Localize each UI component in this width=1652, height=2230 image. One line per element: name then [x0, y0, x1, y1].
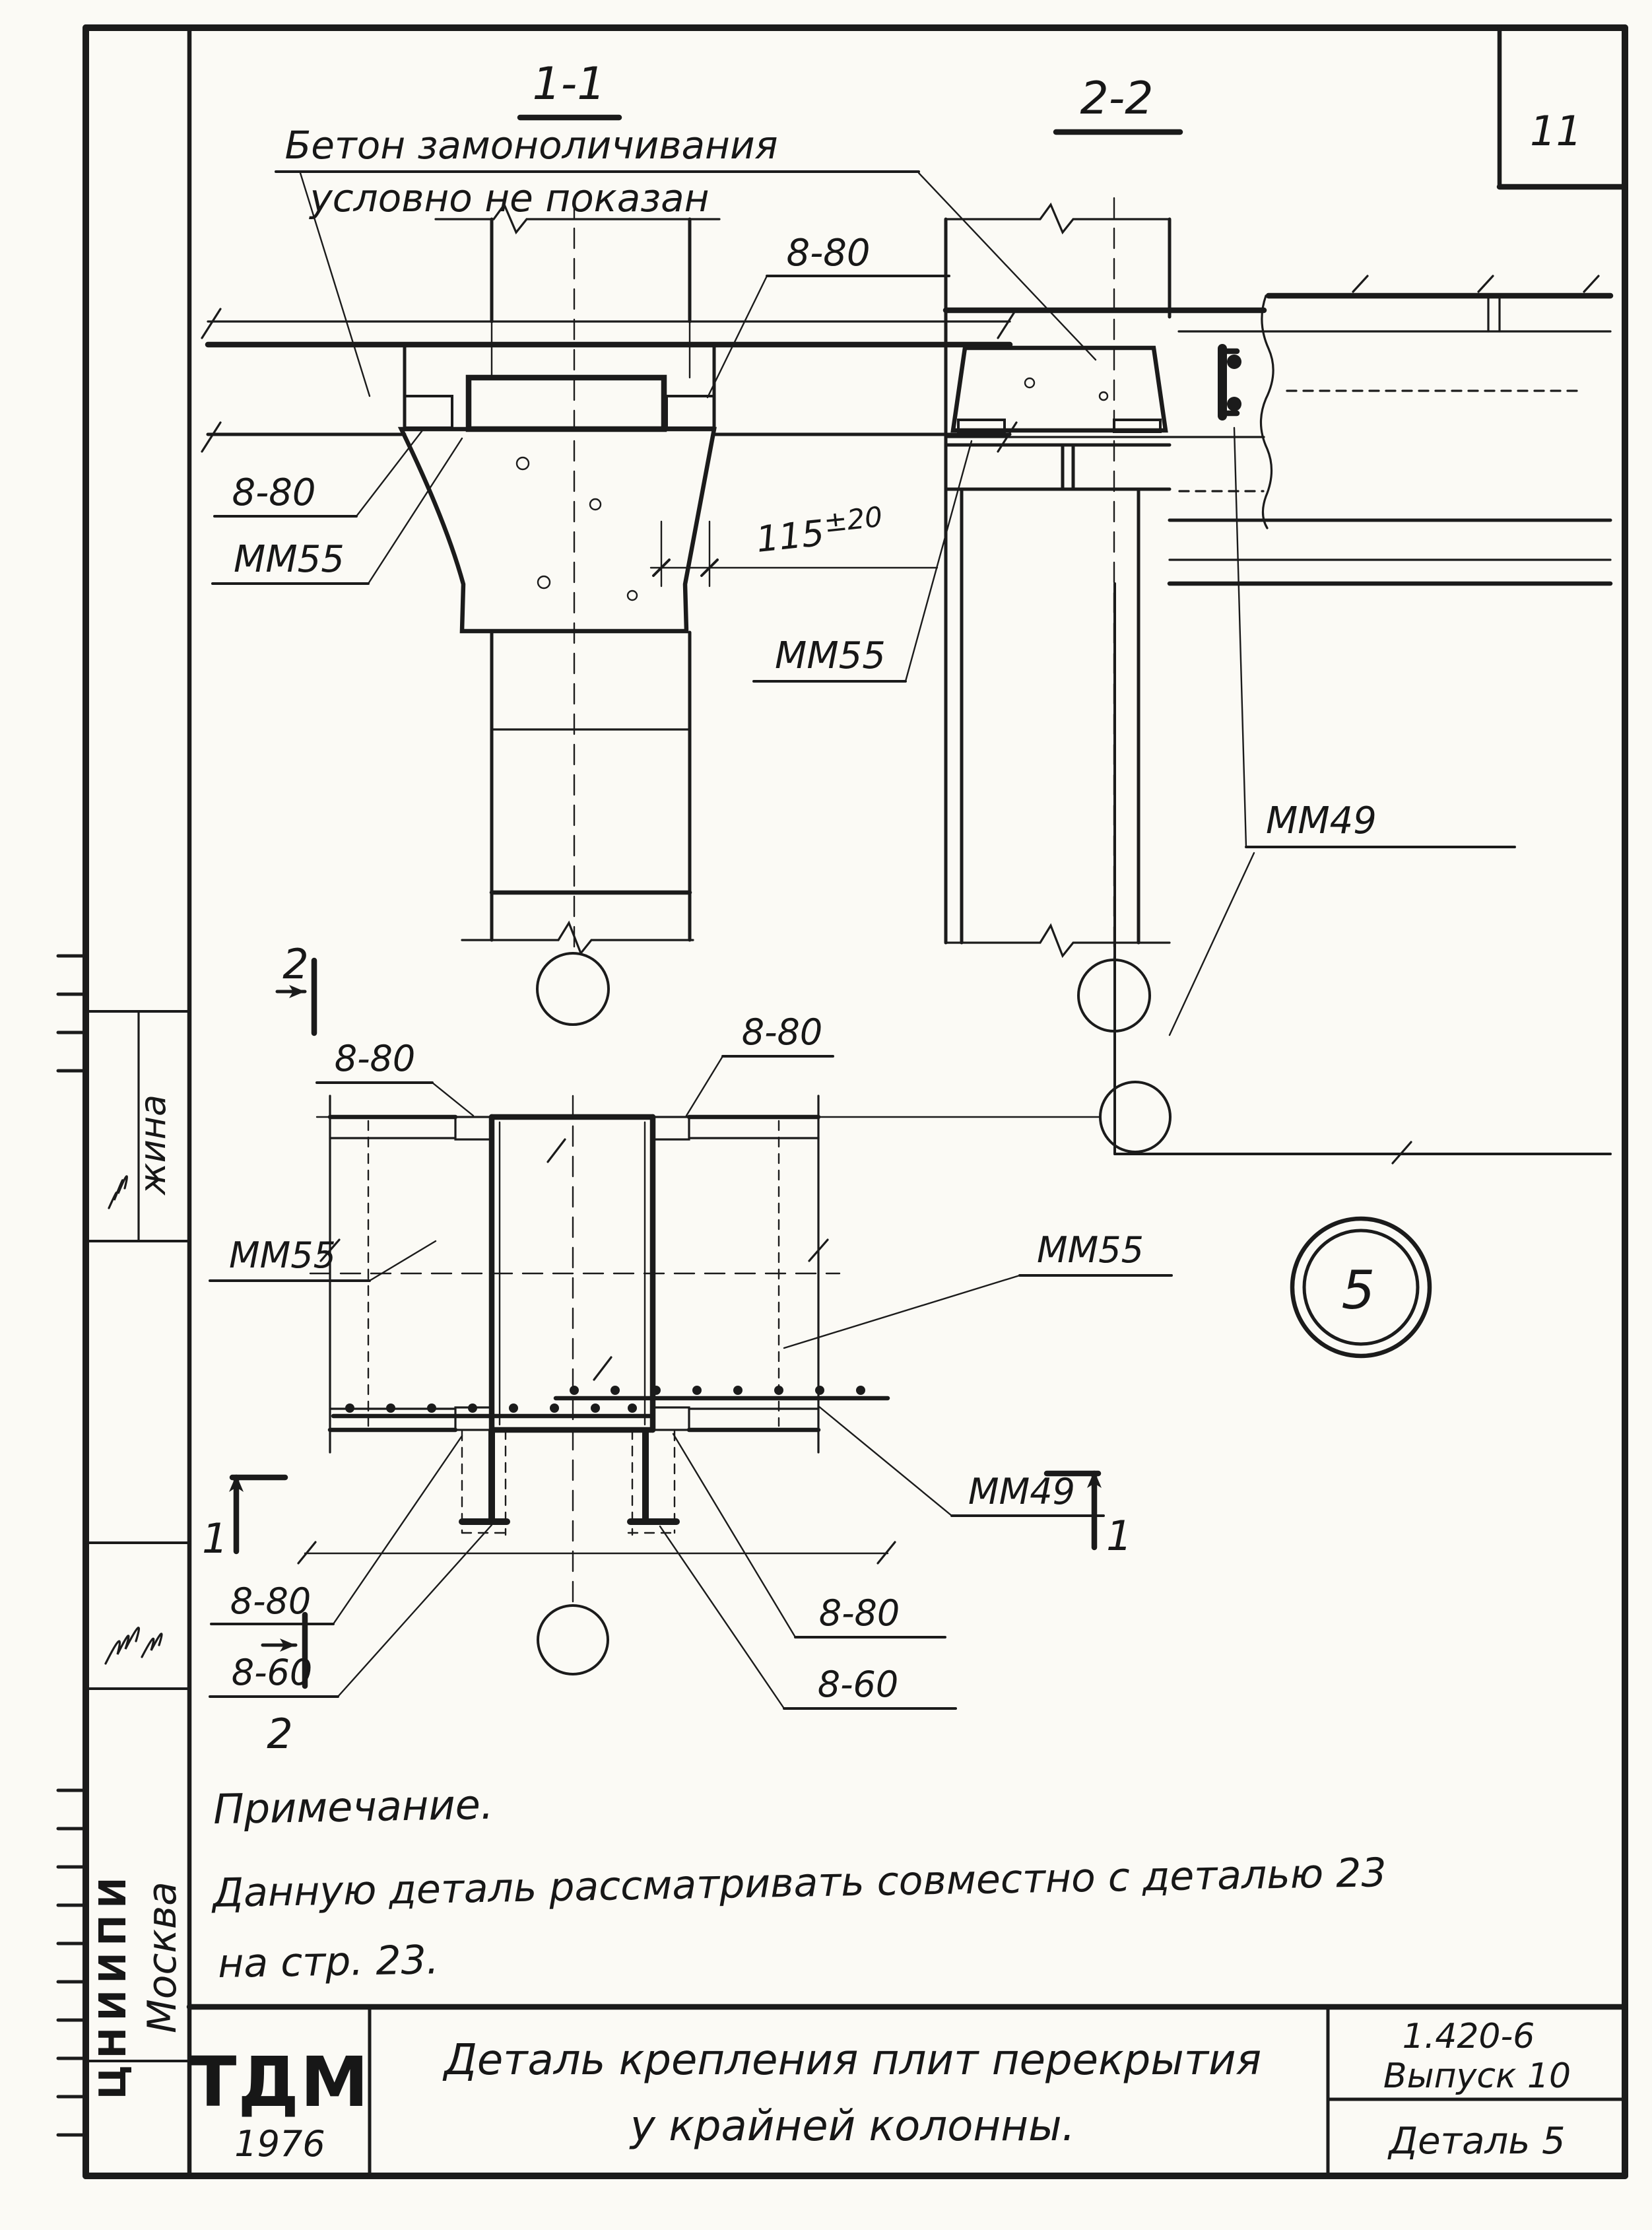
dim-115-value: 115: [754, 512, 826, 560]
grid-circle-1: [537, 953, 609, 1025]
label-8-80-plan-bl: 8-80: [230, 1580, 312, 1622]
section-mark-2-label: 2: [282, 940, 308, 988]
note-block: Примечание. Данную деталь рассматривать …: [209, 1765, 1388, 1987]
grid-circle-3: [1100, 1082, 1170, 1152]
rebar-right: [556, 1386, 888, 1398]
top-note-line1: Бетон замоноличивания: [284, 123, 777, 168]
title-block-series: 1.420-6: [1403, 2017, 1535, 2056]
title-block-title-line2: у крайней колонны.: [629, 2102, 1075, 2151]
anchor-channel: [1222, 349, 1241, 416]
drawing-sheet: жина ЦНИИПИ Москва 11 Бетон замоноличива…: [0, 0, 1652, 2230]
slab-end-section: [953, 348, 1166, 430]
sidebar-city: Москва: [139, 1881, 185, 2033]
section-mark-2-label-b: 2: [267, 1710, 292, 1758]
note-line1: Данную деталь рассматривать совместно с …: [211, 1850, 1387, 1916]
label-8-60-plan-br: 8-60: [818, 1664, 899, 1705]
title-block-detail: Деталь 5: [1387, 2120, 1565, 2163]
sidebar-signature: жина: [132, 1095, 174, 1196]
top-note: Бетон замоноличивания условно не показан: [276, 123, 1096, 396]
label-mm55-plan-r: ММ55: [1037, 1229, 1144, 1271]
title-block-logo: ТДМ: [189, 2042, 370, 2122]
title-block-issue: Выпуск 10: [1383, 2056, 1571, 2096]
plan-view: 2 2 1 1: [202, 940, 1172, 1758]
label-mm55-plan-l: ММ55: [229, 1234, 336, 1276]
label-mm49-s2: ММ49: [1266, 799, 1377, 842]
label-8-80-plan-tl: 8-80: [335, 1038, 416, 1079]
note-line2: на стр. 23.: [218, 1937, 440, 1987]
sidebar-stamp-column: жина ЦНИИПИ Москва: [86, 1011, 189, 2099]
sidebar-scribble2-icon: [106, 1628, 162, 1664]
title-block-title-line1: Деталь крепления плит перекрытия: [442, 2036, 1261, 2085]
sidebar-org-stamp: ЦНИИПИ: [92, 1871, 135, 2099]
label-mm55-s1: ММ55: [234, 538, 345, 581]
title-block-year: 1976: [234, 2123, 325, 2165]
dim-115-tolerance: ±20: [822, 500, 884, 539]
section-mark-1-left: 1: [202, 1475, 285, 1563]
capital-head: [469, 378, 664, 429]
page-number: 11: [1530, 107, 1582, 155]
section-mark-1-label-l: 1: [202, 1514, 228, 1563]
note-heading: Примечание.: [213, 1780, 494, 1833]
title-block: ТДМ 1976 Деталь крепления плит перекрыти…: [189, 2007, 1625, 2176]
label-mm55-s2: ММ55: [775, 634, 886, 677]
bearing-pad-left: [405, 396, 452, 428]
section-mark-1-label-r: 1: [1106, 1512, 1132, 1560]
section-mark-2-top: 2: [277, 940, 314, 1033]
sidebar-scribble-icon: [109, 1176, 127, 1208]
sheet-frame: [86, 28, 1625, 2176]
label-8-80-s1-left: 8-80: [232, 471, 315, 514]
bearing-pad-right: [667, 396, 714, 428]
label-8-80-plan-tr: 8-80: [742, 1011, 823, 1053]
section-2-2: 2-2: [754, 73, 1610, 1163]
page-number-box: 11: [1500, 28, 1625, 187]
detail-number: 5: [1342, 1260, 1375, 1321]
label-8-80-s1-right: 8-80: [786, 232, 870, 275]
label-8-80-plan-br: 8-80: [819, 1592, 900, 1634]
binding-ticks: [58, 956, 83, 2135]
section-1-1-title: 1-1: [532, 58, 605, 110]
label-mm49-plan: ММ49: [968, 1471, 1075, 1512]
sheet: жина ЦНИИПИ Москва 11 Бетон замоноличива…: [0, 0, 1652, 2230]
grid-circle-4: [538, 1605, 608, 1674]
section-2-2-title: 2-2: [1080, 73, 1153, 125]
label-8-60-plan-bl: 8-60: [232, 1652, 313, 1693]
detail-number-badge: 5: [1292, 1219, 1430, 1356]
